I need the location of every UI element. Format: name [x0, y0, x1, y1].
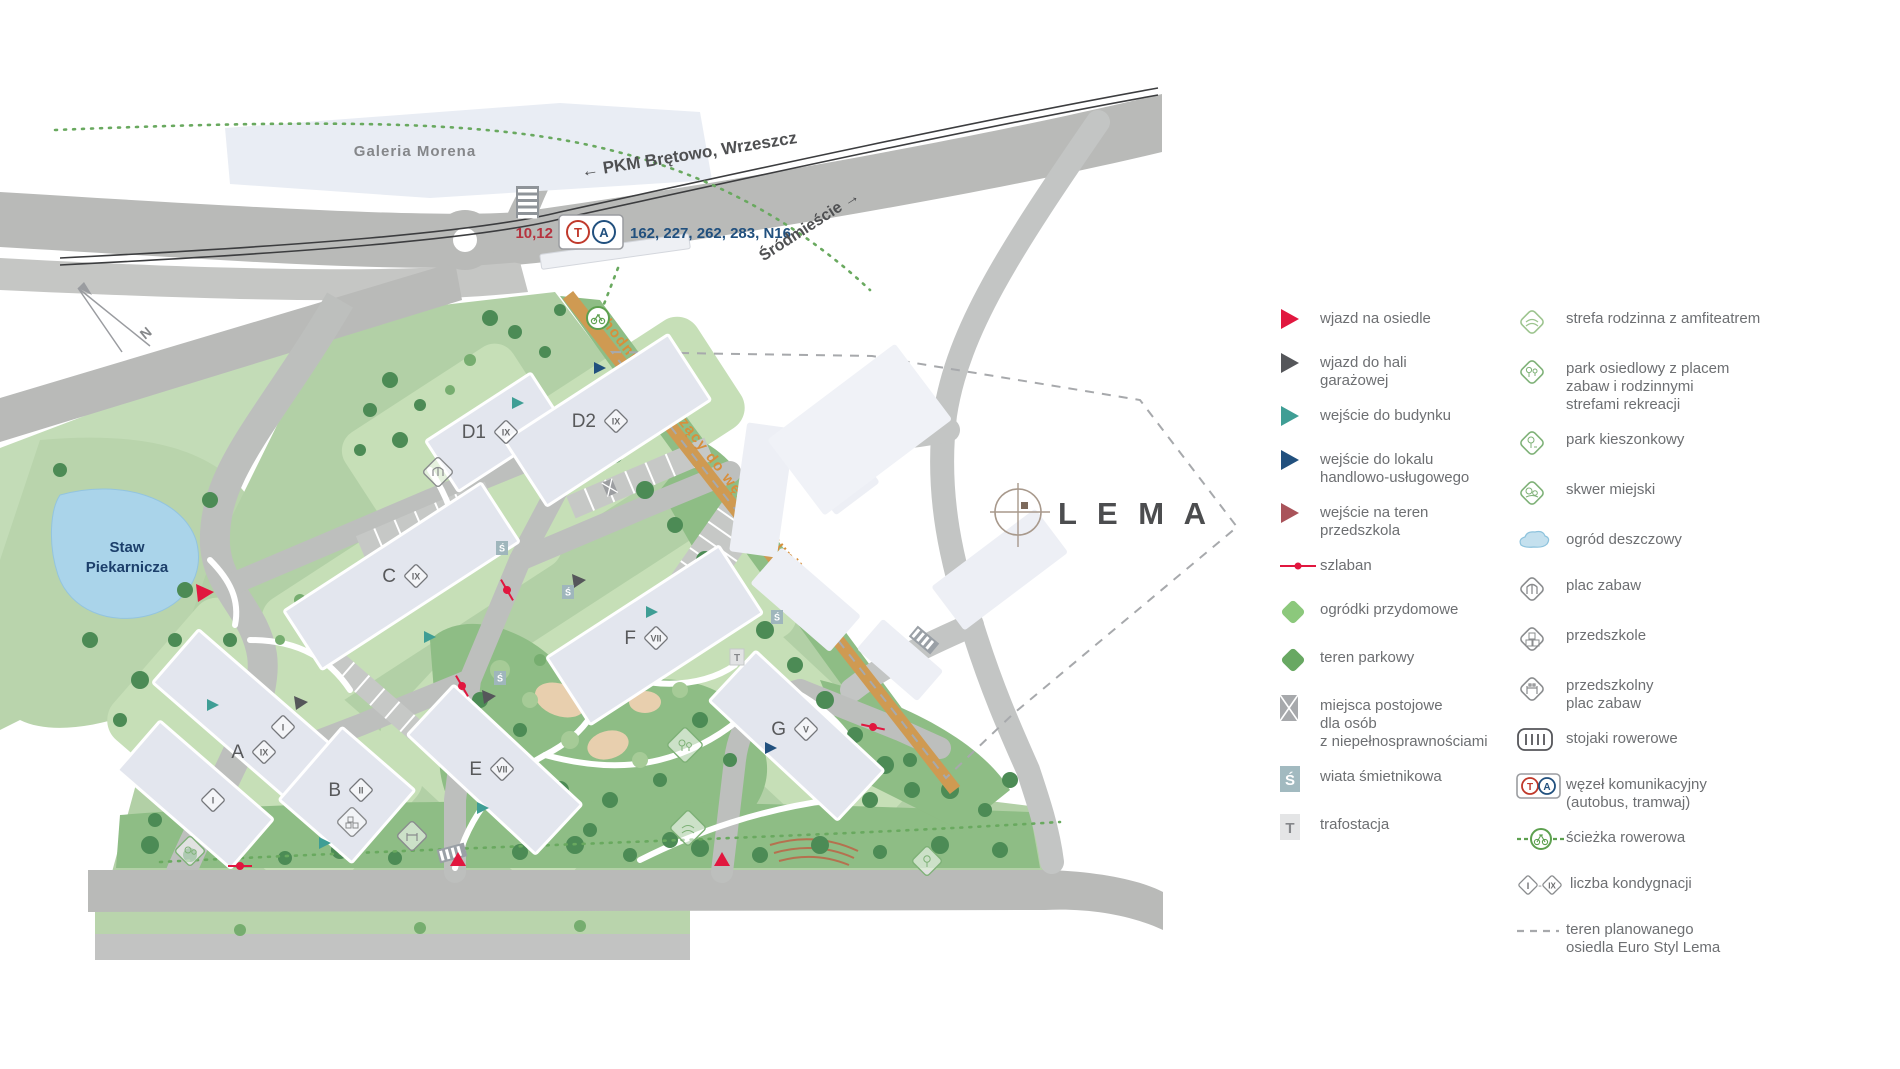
building-label: C: [382, 566, 396, 587]
legend-row: wjazd na osiedle: [1278, 306, 1528, 337]
storeys-icon: I-IX: [1516, 871, 1570, 904]
legend-label: wjazd na osiedle: [1320, 306, 1431, 328]
retail-entrance-icon: [1278, 447, 1320, 478]
legend-row: strefa rodzinna z amfiteatrem: [1516, 306, 1876, 343]
legend-row: wjazd do hali garażowej: [1278, 350, 1528, 390]
svg-text:Ś: Ś: [499, 543, 505, 554]
svg-text:IX: IX: [412, 572, 421, 582]
legend-label: liczba kondygnacji: [1570, 871, 1692, 893]
transit-node-icon: TA: [1516, 772, 1566, 805]
legend-row: wejście do lokalu handlowo-usługowego: [1278, 447, 1528, 487]
legend-label: ogródki przydomowe: [1320, 597, 1458, 619]
legend-row: teren planowanego osiedla Euro Styl Lema: [1516, 917, 1876, 957]
legend-column-1: wjazd na osiedle wjazd do hali garażowej…: [1278, 306, 1528, 860]
building-label: D1: [462, 422, 486, 443]
svg-text:Ś: Ś: [565, 587, 571, 598]
legend-row: plac zabaw: [1516, 573, 1876, 610]
svg-text:T: T: [1527, 782, 1533, 793]
garage-entrance-icon: [1278, 350, 1320, 381]
legend-label: ścieżka rowerowa: [1566, 825, 1685, 847]
transformer-icon: T: [1278, 812, 1320, 847]
svg-text:-: -: [1538, 880, 1542, 892]
svg-text:IX: IX: [612, 417, 621, 427]
svg-text:I: I: [212, 796, 215, 806]
legend-label: szlaban: [1320, 553, 1372, 575]
svg-text:Ś: Ś: [1285, 771, 1295, 789]
estate-park-icon: [1516, 356, 1566, 393]
legend-row: ogródki przydomowe: [1278, 597, 1528, 632]
svg-text:V: V: [803, 725, 809, 735]
legend-row: skwer miejski: [1516, 477, 1876, 514]
bike-racks-icon: [1516, 726, 1566, 759]
legend-label: strefa rodzinna z amfiteatrem: [1566, 306, 1760, 328]
site-plan-page: Staw Piekarnicza: [0, 0, 1900, 1069]
building-label: D2: [572, 411, 596, 432]
legend-label: węzeł komunikacyjny (autobus, tramwaj): [1566, 772, 1707, 812]
building-label: G: [771, 719, 786, 740]
legend-row: ogród deszczowy: [1516, 527, 1876, 560]
transformer-icon: T: [730, 649, 744, 665]
pocket-park-icon: [1516, 427, 1566, 464]
svg-text:A: A: [1543, 782, 1550, 793]
legend-row: TA węzeł komunikacyjny (autobus, tramwaj…: [1516, 772, 1876, 812]
svg-text:Ś: Ś: [497, 673, 503, 684]
bus-numbers: 162, 227, 262, 283, N16: [630, 225, 791, 242]
preschool-playground-icon: [1516, 673, 1566, 710]
legend-row: park kieszonkowy: [1516, 427, 1876, 464]
building-label: F: [624, 628, 636, 649]
legend-label: wejście na teren przedszkola: [1320, 500, 1428, 540]
legend-label: miejsca postojowe dla osób z niepełnospr…: [1320, 693, 1488, 751]
pond-label: Piekarnicza: [86, 559, 169, 576]
legend-row: Ś wiata śmietnikowa: [1278, 764, 1528, 799]
svg-text:I: I: [282, 723, 285, 733]
legend-label: ogród deszczowy: [1566, 527, 1682, 549]
svg-text:T: T: [1285, 820, 1294, 837]
legend-row: przedszkole: [1516, 623, 1876, 660]
svg-text:VII: VII: [650, 634, 661, 644]
legend-row: I-IX liczba kondygnacji: [1516, 871, 1876, 904]
legend-row: stojaki rowerowe: [1516, 726, 1876, 759]
legend-label: wejście do lokalu handlowo-usługowego: [1320, 447, 1469, 487]
legend-row: park osiedlowy z placem zabaw i rodzinny…: [1516, 356, 1876, 414]
galeria-morena: Galeria Morena: [225, 103, 712, 198]
building-label: E: [469, 759, 482, 780]
preschool-entrance-icon: [1278, 500, 1320, 531]
legend-label: plac zabaw: [1566, 573, 1641, 595]
svg-text:II: II: [358, 786, 363, 796]
waste-shelter-icon: Ś: [1278, 764, 1320, 799]
legend-label: trafostacja: [1320, 812, 1389, 834]
bike-path-icon: [1516, 825, 1566, 858]
legend-label: park osiedlowy z placem zabaw i rodzinny…: [1566, 356, 1729, 414]
svg-text:T: T: [734, 653, 740, 664]
tram-numbers: 10,12: [515, 225, 553, 242]
legend-label: wejście do budynku: [1320, 403, 1451, 425]
building-label: B: [328, 780, 341, 801]
svg-text:I: I: [1527, 881, 1530, 891]
playground-icon: [1516, 573, 1566, 610]
home-gardens-icon: [1278, 597, 1320, 632]
tram-letter: T: [574, 225, 582, 240]
legend-row: teren parkowy: [1278, 645, 1528, 680]
planned-area-icon: [1516, 917, 1566, 950]
legend-label: teren parkowy: [1320, 645, 1414, 667]
park-area-icon: [1278, 645, 1320, 680]
legend-row: szlaban: [1278, 553, 1528, 584]
galeria-morena-label: Galeria Morena: [354, 143, 476, 160]
legend-row: miejsca postojowe dla osób z niepełnospr…: [1278, 693, 1528, 751]
svg-text:IX: IX: [502, 428, 511, 438]
legend-row: T trafostacja: [1278, 812, 1528, 847]
svg-text:IX: IX: [260, 748, 269, 758]
legend-label: wiata śmietnikowa: [1320, 764, 1442, 786]
legend-label: teren planowanego osiedla Euro Styl Lema: [1566, 917, 1720, 957]
city-square-icon: [1516, 477, 1566, 514]
rain-garden-icon: [1516, 527, 1566, 560]
estate-entrance-icon: [1278, 306, 1320, 337]
legend-row: ścieżka rowerowa: [1516, 825, 1876, 858]
family-zone-icon: [1516, 306, 1566, 343]
legend-row: wejście na teren przedszkola: [1278, 500, 1528, 540]
bus-letter: A: [599, 225, 609, 240]
pond-label: Staw: [109, 539, 144, 556]
disabled-parking-icon: [1278, 693, 1320, 728]
lema-logo-text: L E M A: [1058, 496, 1212, 531]
svg-text:VII: VII: [496, 765, 507, 775]
barrier-icon: [1278, 553, 1320, 584]
legend-label: przedszkole: [1566, 623, 1646, 645]
legend-label: wjazd do hali garażowej: [1320, 350, 1407, 390]
legend-label: przedszkolny plac zabaw: [1566, 673, 1654, 713]
building-entrance-icon: [1278, 403, 1320, 434]
building-label: A: [231, 742, 244, 763]
svg-text:Ś: Ś: [774, 612, 780, 623]
legend-label: park kieszonkowy: [1566, 427, 1684, 449]
legend-label: skwer miejski: [1566, 477, 1655, 499]
bike-path-icon: [587, 307, 609, 329]
compass-n-label: N: [137, 324, 155, 343]
legend-row: przedszkolny plac zabaw: [1516, 673, 1876, 713]
svg-text:IX: IX: [1548, 882, 1556, 891]
legend-column-2: strefa rodzinna z amfiteatrem park osied…: [1516, 306, 1876, 970]
legend-label: stojaki rowerowe: [1566, 726, 1678, 748]
legend-row: wejście do budynku: [1278, 403, 1528, 434]
preschool-icon: [1516, 623, 1566, 660]
